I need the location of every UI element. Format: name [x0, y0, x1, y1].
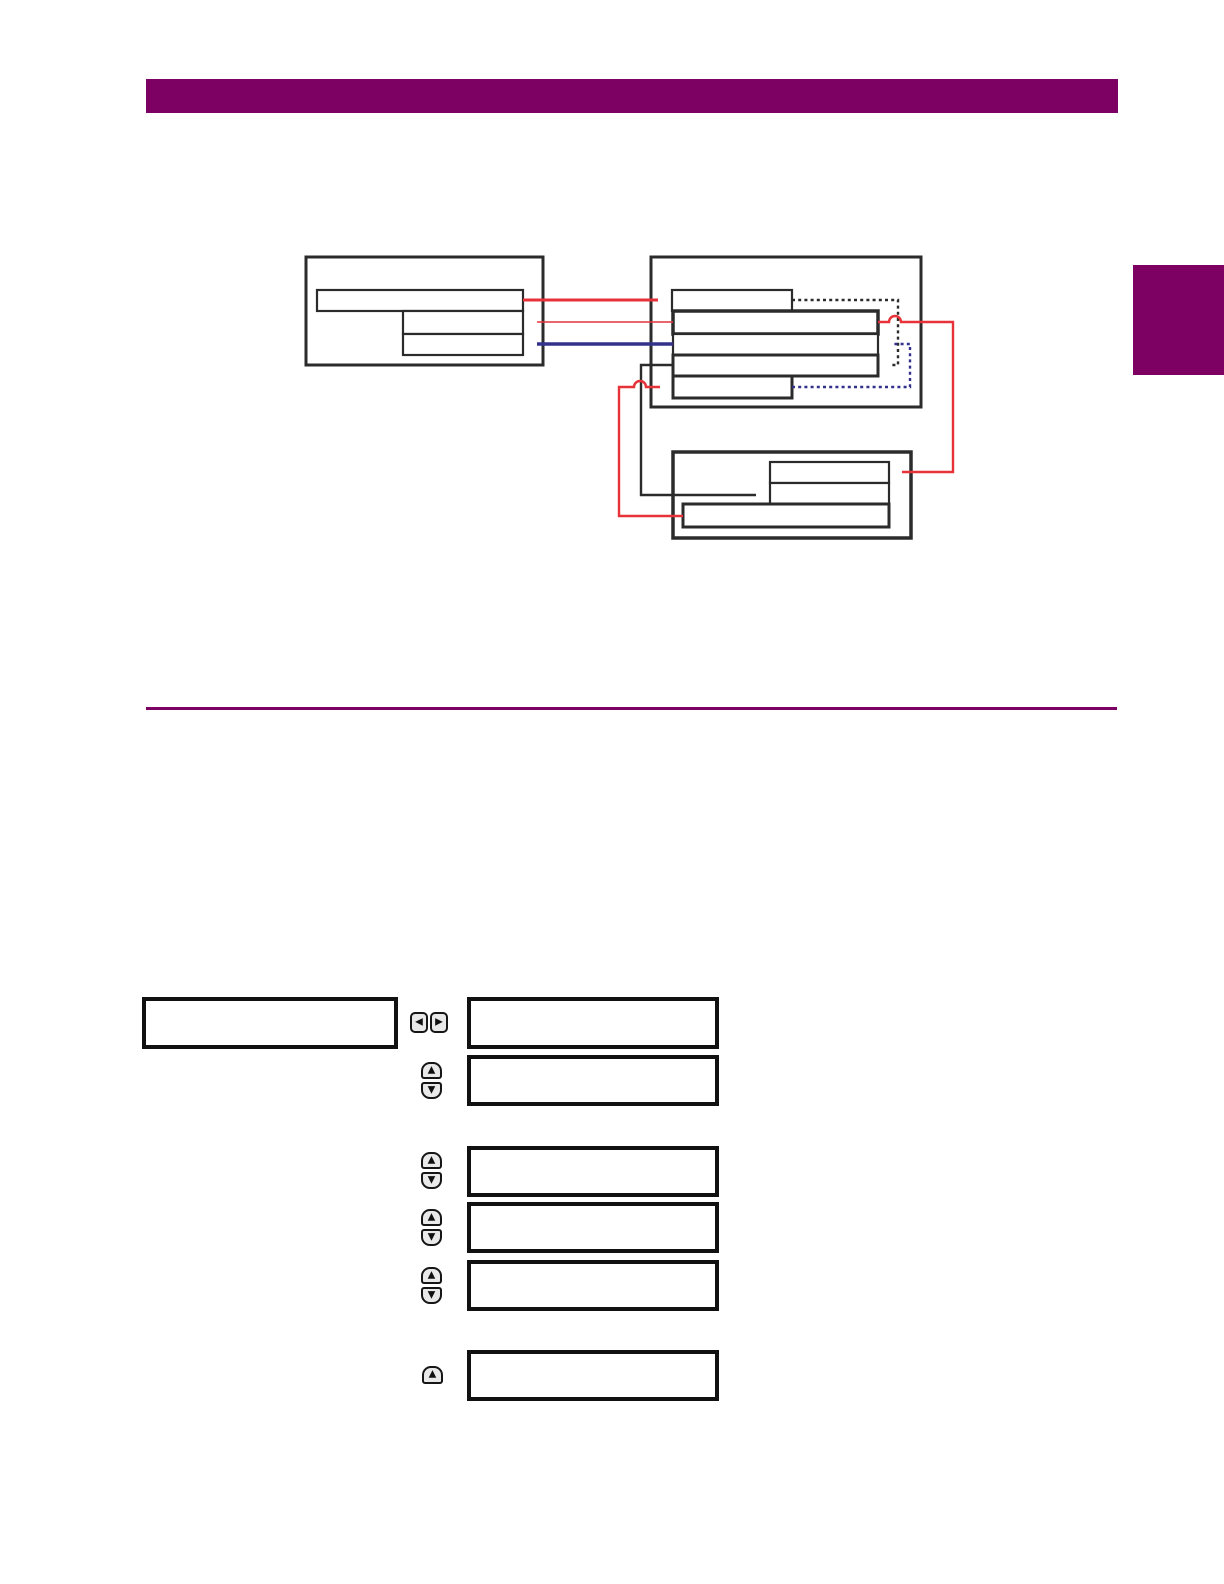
bottom-row-3 [683, 504, 889, 527]
manual-page: ◀ ▶ ▲ ▼ ▲ ▼ ▲ ▼ ▲ ▼ ▲ [0, 0, 1224, 1584]
right-row-5 [673, 376, 792, 398]
up-arrow-glyph: ▲ [428, 1212, 436, 1222]
right-row-3 [673, 334, 878, 355]
up-key-icon: ▲ [421, 1152, 442, 1169]
right-key-icon: ▶ [430, 1012, 448, 1033]
section-divider-rule [146, 707, 1117, 710]
left-row-2 [403, 311, 523, 334]
left-arrow-glyph: ◀ [415, 1017, 423, 1027]
up-arrow-glyph: ▲ [428, 1065, 436, 1075]
up-key-icon: ▲ [421, 1062, 442, 1079]
display-box-right-3 [467, 1146, 719, 1197]
right-row-1 [672, 290, 792, 311]
display-box-left [142, 997, 398, 1049]
down-key-icon: ▼ [421, 1082, 442, 1099]
bottom-row-2 [770, 483, 889, 504]
down-key-icon: ▼ [421, 1172, 442, 1189]
down-arrow-glyph: ▼ [428, 1232, 436, 1242]
left-row-1 [317, 290, 523, 311]
left-key-icon: ◀ [410, 1012, 428, 1033]
down-arrow-glyph: ▼ [428, 1175, 436, 1185]
display-box-right-6 [467, 1350, 719, 1401]
down-arrow-glyph: ▼ [428, 1085, 436, 1095]
keypad-left-right-keys: ◀ ▶ [410, 1012, 448, 1033]
down-key-icon: ▼ [421, 1287, 442, 1304]
display-box-right-4 [467, 1202, 719, 1253]
up-key-icon: ▲ [422, 1366, 443, 1384]
up-arrow-glyph: ▲ [428, 1155, 436, 1165]
keypad-up-down-keys-1: ▲ ▼ [421, 1062, 442, 1099]
up-arrow-glyph: ▲ [429, 1370, 437, 1380]
display-box-right-2 [467, 1055, 719, 1106]
down-arrow-glyph: ▼ [428, 1290, 436, 1300]
menu-navigation-flow-diagram [0, 0, 1224, 560]
bottom-row-1 [770, 462, 889, 483]
keypad-up-down-keys-4: ▲ ▼ [421, 1267, 442, 1304]
up-arrow-glyph: ▲ [428, 1270, 436, 1280]
up-key-icon: ▲ [421, 1267, 442, 1284]
right-row-2 [673, 311, 878, 334]
display-box-right-1 [467, 997, 719, 1049]
left-row-3 [403, 334, 523, 355]
keypad-up-key-single: ▲ [422, 1366, 443, 1384]
keypad-up-down-keys-2: ▲ ▼ [421, 1152, 442, 1189]
right-arrow-glyph: ▶ [435, 1017, 443, 1027]
display-box-right-5 [467, 1260, 719, 1311]
up-key-icon: ▲ [421, 1209, 442, 1226]
down-key-icon: ▼ [421, 1229, 442, 1246]
right-row-4 [673, 355, 878, 376]
keypad-up-down-keys-3: ▲ ▼ [421, 1209, 442, 1246]
